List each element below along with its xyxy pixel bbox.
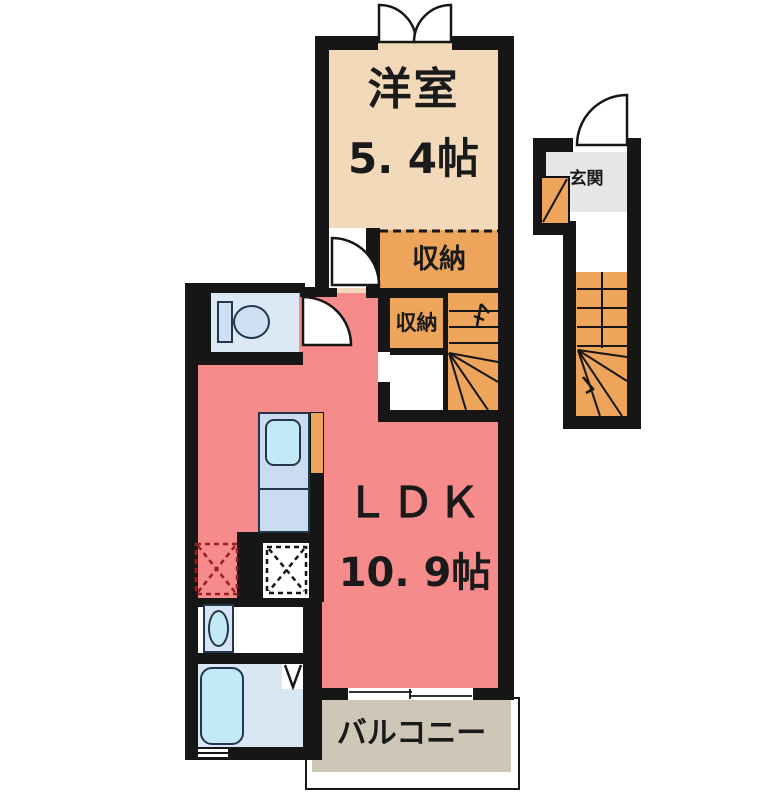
western-room-size: 5. 4帖 bbox=[324, 138, 503, 180]
wall bbox=[185, 283, 198, 760]
hall-door-gap bbox=[378, 352, 390, 382]
balcony-window bbox=[348, 688, 473, 700]
toilet-walls bbox=[185, 352, 303, 365]
toilet-bowl bbox=[233, 305, 270, 339]
closet-lower-label: 収納 bbox=[388, 313, 445, 334]
toilet-tank bbox=[217, 301, 233, 343]
wall bbox=[185, 653, 303, 664]
floor-plan: 洋室 5. 4帖 収納 収納 ＬＤＫ 10. 9帖 バルコニー 玄関 bbox=[0, 0, 778, 800]
interior-staircase bbox=[448, 293, 498, 410]
wall bbox=[237, 532, 263, 602]
upper-hall-floor bbox=[390, 355, 443, 410]
wall bbox=[307, 688, 352, 700]
entrance-label: 玄関 bbox=[546, 171, 627, 188]
refrigerator-nook-floor bbox=[263, 543, 309, 598]
wall bbox=[300, 287, 337, 297]
balcony-label: バルコニー bbox=[312, 719, 511, 749]
western-room-label: 洋室 bbox=[329, 68, 498, 112]
bath-folding-door-bg bbox=[282, 664, 303, 689]
ldk-size: 10. 9帖 bbox=[320, 553, 510, 593]
wall bbox=[563, 416, 641, 429]
entrance-doorway bbox=[573, 138, 627, 152]
bathtub bbox=[200, 667, 244, 745]
wall bbox=[563, 221, 576, 429]
wall bbox=[470, 688, 498, 700]
washbasin-bowl bbox=[208, 610, 229, 647]
kitchen-side-panel bbox=[310, 412, 324, 474]
ldk-label: ＬＤＫ bbox=[320, 482, 510, 524]
kitchen-sink bbox=[265, 419, 301, 466]
bath-window-slit bbox=[198, 749, 228, 752]
closet-upper-label: 収納 bbox=[380, 246, 498, 273]
bath-window-slit bbox=[198, 754, 228, 757]
entrance-staircase bbox=[576, 272, 627, 416]
wall bbox=[627, 138, 641, 429]
western-room-doorway bbox=[329, 228, 366, 288]
entrance-hall-floor bbox=[576, 212, 627, 272]
